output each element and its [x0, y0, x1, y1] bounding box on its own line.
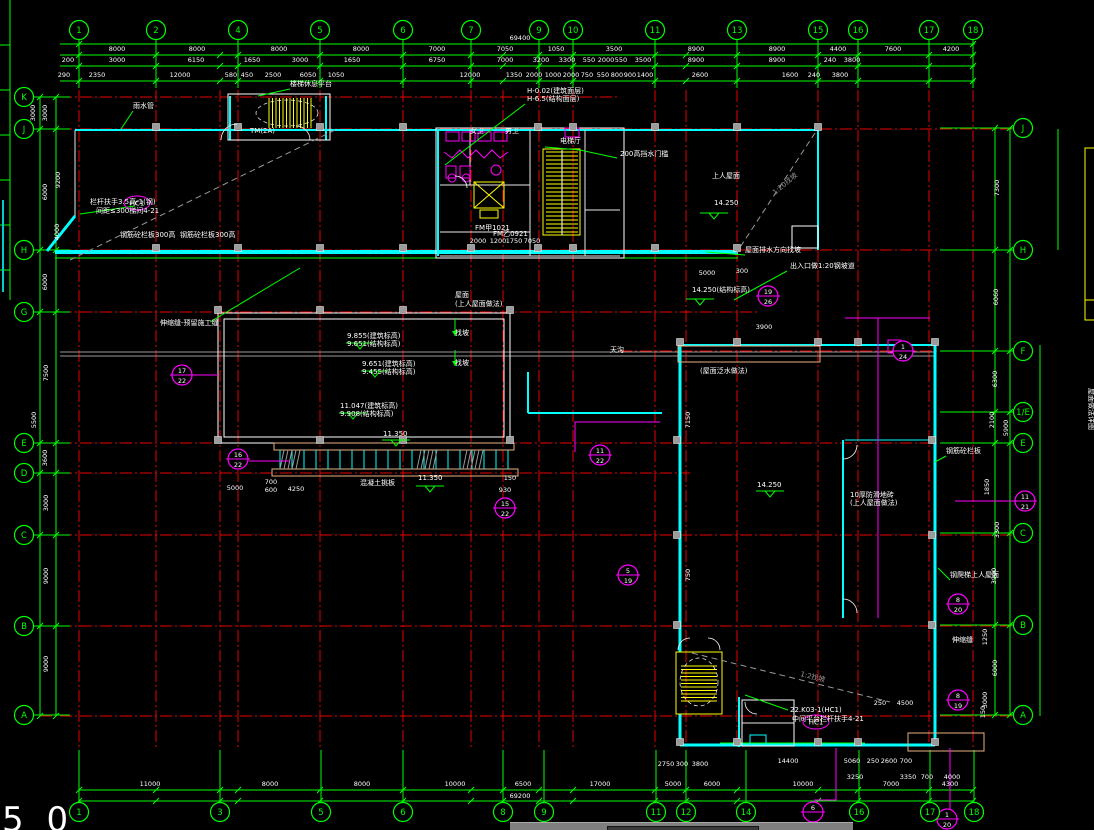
column-marker — [570, 245, 577, 252]
dimension-text: 1650 — [344, 56, 361, 64]
dimension-text: 580 — [225, 71, 237, 79]
dimension-text-vertical: 3000 — [29, 105, 37, 122]
grid-bubble-label: 2 — [153, 26, 158, 36]
dimension-text: 8900 — [688, 45, 705, 53]
column-marker — [929, 532, 936, 539]
detail-bubble-bottom-text: 22 — [501, 510, 509, 518]
annotation-text: 9.908(结构标高) — [340, 409, 394, 418]
detail-bubble-top-text: 8 — [956, 692, 960, 700]
dimension-text: 900 — [624, 71, 636, 79]
dimension-text-vertical: 6000 — [41, 184, 49, 201]
grid-bubble-label: 11 — [651, 808, 662, 818]
grid-bubble-label: 3 — [217, 808, 222, 818]
dimension-text: 2000 — [526, 71, 543, 79]
detail-bubble-bottom-text: 20 — [943, 821, 951, 829]
dimension-text: 800 — [611, 71, 623, 79]
detail-bubble-bottom-text: 20 — [954, 606, 962, 614]
dimension-text: 5000 — [665, 780, 682, 788]
dimension-text: 6000 — [704, 780, 721, 788]
dimension-text: 2000 — [598, 56, 615, 64]
dimension-text: 69200 — [510, 792, 531, 800]
dimension-text: 4500 — [897, 699, 914, 707]
dimension-text: 300 — [736, 267, 748, 275]
annotation-text: 钢筋砼栏板 — [946, 446, 981, 455]
annotation-text: 屋面 — [455, 291, 469, 299]
grid-bubble-label: 5 — [318, 808, 323, 818]
detail-bubble-top-text: 1 — [945, 811, 949, 819]
dimension-text: 240 — [824, 56, 836, 64]
dimension-text: 550 — [615, 56, 627, 64]
dimension-text: 250 — [874, 699, 886, 707]
grid-bubble-label: 17 — [924, 26, 935, 36]
annotation-text: 女卫 — [470, 126, 484, 135]
dimension-text: 3900 — [756, 323, 773, 331]
dimension-text: 7050 — [497, 45, 514, 53]
annotation-text: 男卫 — [505, 127, 519, 135]
dimension-text: 8000 — [262, 780, 279, 788]
sink-fixture — [491, 165, 501, 175]
plan-rect — [480, 210, 498, 218]
dimension-text: 450 — [241, 71, 253, 79]
annotation-text: 中间平台栏杆扶手4-21 — [792, 714, 864, 723]
dimension-text-vertical: 9200 — [54, 172, 62, 189]
detail-bubble-top-text: 1 — [901, 343, 905, 351]
annotation-text: 栏杆扶手3.5高-1(钢) — [90, 197, 156, 206]
dimension-text: 1750 — [506, 237, 523, 245]
cad-drawing-canvas[interactable]: 1722162215221122519192611218208196120124… — [0, 0, 1094, 830]
dimension-text-vertical: 1250 — [981, 629, 989, 646]
door-swing-arc — [843, 599, 857, 613]
grid-bubble-label: 8 — [500, 808, 505, 818]
dimension-text: 4000 — [944, 773, 961, 781]
dimension-text: 700 — [921, 773, 933, 781]
dimension-text: 1400 — [637, 71, 654, 79]
column-marker — [674, 622, 681, 629]
annotation-text: 9.651(结构标高) — [347, 339, 401, 348]
detail-bubble-bottom-text: 24 — [899, 353, 907, 361]
annotation-text: 11.350 — [383, 430, 408, 438]
taskbar-inner-panel[interactable] — [607, 826, 759, 830]
annotation-leader — [258, 89, 290, 96]
dimension-text: 3800 — [844, 56, 861, 64]
sheet-number-label: 5 0 — [2, 800, 74, 830]
detail-bubble-bottom-text: 19 — [954, 702, 962, 710]
dimension-text-vertical: 7500 — [42, 365, 50, 382]
dimension-text: 6750 — [429, 56, 446, 64]
column-marker — [507, 307, 514, 314]
detail-bubble-top-text: 19 — [764, 288, 772, 296]
column-marker — [932, 339, 939, 346]
grid-bubble-label: K — [21, 93, 27, 103]
hatch-line — [284, 450, 288, 469]
drawing-svg: 1722162215221122519192611218208196120124… — [0, 0, 1094, 830]
grid-bubble-label: A — [1020, 711, 1026, 721]
grid-bubble-label: A — [21, 711, 27, 721]
grid-bubble-label: 15 — [813, 26, 824, 36]
grid-bubble-label: 1 — [76, 26, 81, 36]
dimension-text: 8000 — [354, 780, 371, 788]
column-marker — [153, 245, 160, 252]
column-marker — [734, 245, 741, 252]
dimension-text-vertical: 5500 — [30, 412, 38, 429]
dimension-text: 2600 — [881, 757, 898, 765]
column-marker — [235, 124, 242, 131]
elevation-marker — [765, 491, 775, 497]
column-marker — [734, 124, 741, 131]
hatch-line — [463, 450, 467, 469]
grid-bubble-label: B — [21, 622, 27, 632]
detail-leader-line — [575, 422, 660, 452]
dimension-text-vertical: 750 — [684, 569, 692, 581]
grid-bubble-label: 16 — [853, 26, 864, 36]
hatch-line — [417, 450, 421, 469]
dimension-text-vertical: 3300 — [993, 522, 1001, 539]
hatch-line — [467, 450, 471, 469]
dimension-text: 8000 — [353, 45, 370, 53]
grid-bubble-label: G — [21, 308, 28, 318]
annotation-text: 屋面排水方向找坡 — [745, 245, 801, 254]
column-marker — [235, 245, 242, 252]
toilet-fixture — [446, 166, 456, 178]
column-marker — [400, 307, 407, 314]
dimension-text: 6050 — [300, 71, 317, 79]
column-marker — [929, 622, 936, 629]
dimension-text: 550 — [583, 56, 595, 64]
plan-rect — [792, 226, 818, 248]
annotation-text-rotated: 屋面做法详图 — [1087, 388, 1094, 430]
annotation-text: 找坡 — [455, 328, 469, 337]
column-marker — [400, 124, 407, 131]
column-marker — [855, 739, 862, 746]
dimension-text: 150 — [504, 474, 516, 482]
grid-bubble-label: 16 — [854, 808, 865, 818]
dimension-text: 7050 — [524, 237, 541, 245]
column-marker — [677, 739, 684, 746]
dimension-text: 8900 — [769, 56, 786, 64]
dimension-text: 6150 — [188, 56, 205, 64]
detail-bubble-top-text: 17 — [178, 367, 186, 375]
door-swing-arc — [843, 445, 857, 459]
annotation-text: (屋面泛水做法) — [700, 366, 748, 375]
annotation-text: 22.K03-1(HC1) — [790, 706, 842, 714]
annotation-text: 11.350 — [418, 474, 443, 482]
annotation-text: 天沟 — [610, 345, 624, 354]
dimension-text: 300 — [676, 760, 688, 768]
dimension-text: 250 — [867, 757, 879, 765]
door-swing-arc — [708, 638, 720, 650]
dimension-text: 7000 — [429, 45, 446, 53]
column-marker — [317, 307, 324, 314]
dimension-text: 10000 — [445, 780, 466, 788]
grid-bubble-label: 4 — [235, 26, 240, 36]
column-marker — [153, 124, 160, 131]
dimension-text-vertical: 5900 — [1002, 420, 1010, 437]
dimension-text: 290 — [58, 71, 70, 79]
dimension-text: 2600 — [692, 71, 709, 79]
column-marker — [535, 245, 542, 252]
grid-bubble-label: E — [21, 439, 26, 449]
grid-bubble-label: 18 — [968, 26, 979, 36]
dimension-text-vertical: 6000 — [991, 660, 999, 677]
column-marker — [815, 739, 822, 746]
wall-segment — [47, 216, 75, 251]
dimension-text-vertical: 3000 — [42, 495, 50, 512]
dimension-text: 7000 — [883, 780, 900, 788]
column-marker — [929, 437, 936, 444]
grid-bubble-label: J — [1021, 124, 1025, 134]
dimension-text: 700 — [900, 757, 912, 765]
dimension-text: 1350 — [506, 71, 523, 79]
dimension-text: 3300 — [559, 56, 576, 64]
hatch-line — [280, 450, 284, 469]
detail-bubble-bottom-text: 26 — [764, 298, 772, 306]
annotation-leader — [745, 695, 788, 710]
grid-bubble-label: 9 — [541, 808, 546, 818]
toilet-fixture — [460, 166, 470, 178]
annotation-text: 伸缩缝-预留施工缝 — [160, 318, 219, 327]
grid-bubble-label: 9 — [536, 26, 541, 36]
annotation-text: 混凝土挑板 — [360, 478, 395, 487]
dimension-text: 3500 — [635, 56, 652, 64]
hatch-line — [475, 450, 479, 469]
grid-bubble-label: 7 — [468, 26, 473, 36]
dimension-text: 600 — [265, 486, 277, 494]
annotation-text: 9.651(建筑标高) — [362, 359, 416, 368]
dimension-text: 8000 — [109, 45, 126, 53]
dimension-text: 4300 — [942, 780, 959, 788]
toilet-fixture — [446, 132, 459, 141]
detail-bubble-top-text: 8 — [956, 596, 960, 604]
dimension-text: 3250 — [847, 773, 864, 781]
detail-bubble-bottom-text: 22 — [234, 461, 242, 469]
dimension-text: 5060 — [844, 757, 861, 765]
annotation-text: 200高挡水门槛 — [620, 149, 668, 158]
dimension-text: 12000 — [460, 71, 481, 79]
column-marker — [652, 124, 659, 131]
annotation-text: 11.047(建筑标高) — [340, 401, 398, 410]
column-marker — [815, 124, 822, 131]
grid-bubble-label: J — [22, 125, 26, 135]
annotation-leader — [210, 268, 300, 322]
column-marker — [400, 245, 407, 252]
elevation-marker — [425, 486, 435, 492]
annotation-text: 电梯厅 — [560, 136, 581, 145]
dimension-text: 12000 — [170, 71, 191, 79]
annotation-text: 钢筋砼栏板300高 — [180, 230, 235, 239]
annotation-text: TM(2A) — [249, 127, 275, 135]
dimension-text-vertical: 7300 — [993, 180, 1001, 197]
column-marker — [734, 739, 741, 746]
column-marker — [932, 739, 939, 746]
dimension-text-vertical: 3000 — [41, 105, 49, 122]
grid-bubble-label: 5 — [317, 26, 322, 36]
dimension-text: 17000 — [590, 780, 611, 788]
grid-bubble-label: 1 — [76, 808, 81, 818]
dimension-text: 8900 — [688, 56, 705, 64]
column-marker — [317, 245, 324, 252]
grid-bubble-label: E — [1020, 439, 1025, 449]
dimension-text-vertical: 3600 — [41, 450, 49, 467]
grid-bubble-label: 6 — [400, 808, 405, 818]
dimension-text: 8900 — [769, 45, 786, 53]
annotation-text: 上人屋面 — [712, 171, 740, 180]
annotation-text-rotated: 1:2找坡 — [800, 669, 827, 684]
annotation-text: 10厚防滑地砖 — [850, 490, 894, 499]
column-marker — [677, 339, 684, 346]
grid-bubble-label: H — [1020, 246, 1026, 256]
annotation-leader — [121, 111, 133, 129]
dimension-text: 5000 — [699, 269, 716, 277]
grid-bubble-label: 17 — [925, 808, 936, 818]
door-swing-arc — [296, 126, 310, 140]
annotation-text: 出入口做1:20钢坡道 — [790, 261, 855, 270]
annotation-leader — [935, 456, 946, 462]
dimension-text: 10000 — [793, 780, 814, 788]
dimension-text: 3800 — [832, 71, 849, 79]
dimension-text: 700 — [265, 478, 277, 486]
dimension-text: 1200 — [490, 237, 507, 245]
grid-bubble-label: 14 — [741, 808, 752, 818]
detail-bubble-top-text: 5 — [626, 567, 630, 575]
dimension-text-vertical: 2100 — [988, 412, 996, 429]
column-marker — [815, 339, 822, 346]
grid-bubble-label: H — [21, 246, 27, 256]
column-marker — [317, 437, 324, 444]
dimension-text: 930 — [499, 486, 511, 494]
detail-bubble-bottom-text: 22 — [596, 457, 604, 465]
fixture-squiggle — [444, 150, 508, 158]
column-marker — [674, 437, 681, 444]
detail-bubble-bottom-text: 21 — [1021, 503, 1029, 511]
annotation-text: (上人屋面做法) — [455, 299, 503, 308]
dimension-text-vertical: 9000 — [42, 656, 50, 673]
annotation-text: 雨水管 — [133, 101, 154, 110]
annotation-text: 9.855(建筑标高) — [347, 331, 401, 340]
grid-bubble-label: 12 — [681, 808, 692, 818]
dimension-text: 1050 — [548, 45, 565, 53]
dimension-text: 3500 — [606, 45, 623, 53]
annotation-text: (上人屋面做法) — [850, 498, 898, 507]
hatch-line — [429, 450, 433, 469]
grid-bubble-label: 6 — [400, 26, 405, 36]
dimension-text: 69400 — [510, 34, 531, 42]
detail-bubble-top-text: 11 — [596, 447, 604, 455]
detail-bubble-bottom-text: 19 — [624, 577, 632, 585]
dimension-text: 3350 — [900, 773, 917, 781]
hatch-line — [296, 450, 300, 469]
annotation-text: 14.250 — [714, 199, 739, 207]
dimension-text: 2350 — [89, 71, 106, 79]
detail-leader-line — [815, 748, 836, 804]
annotation-text: 间距≤300梯间4-21 — [96, 206, 159, 215]
grid-bubble-label: 11 — [650, 26, 661, 36]
dimension-text: 4250 — [288, 485, 305, 493]
plan-rect — [1085, 300, 1094, 320]
column-marker — [734, 339, 741, 346]
dimension-text: 1000 — [545, 71, 562, 79]
column-marker — [674, 532, 681, 539]
dimension-text: 7000 — [497, 56, 514, 64]
grid-bubble-label: 18 — [969, 808, 980, 818]
dimension-text-vertical: 6000 — [41, 274, 49, 291]
column-marker — [652, 245, 659, 252]
dimension-text: 2000 — [563, 71, 580, 79]
dimension-text: 1650 — [244, 56, 261, 64]
dimension-text: 8000 — [271, 45, 288, 53]
grid-bubble-label: 13 — [732, 26, 743, 36]
dimension-text: 3800 — [692, 760, 709, 768]
dimension-text: 240 — [808, 71, 820, 79]
column-marker — [317, 124, 324, 131]
annotation-text: 找坡 — [455, 358, 469, 367]
hatch-line — [288, 450, 292, 469]
dimension-text-vertical: 9000 — [42, 568, 50, 585]
annotation-text: 伸缩缝 — [952, 635, 973, 644]
dimension-text: 2500 — [265, 71, 282, 79]
dimension-text-vertical: 1850 — [983, 479, 991, 496]
dimension-text: 200 — [62, 56, 74, 64]
dimension-text: 3200 — [533, 56, 550, 64]
column-marker — [215, 437, 222, 444]
grid-bubble-label: B — [1020, 621, 1026, 631]
grid-bubble-label: C — [1020, 529, 1026, 539]
detail-bubble-top-text: 6 — [811, 804, 815, 812]
dimension-text: 3000 — [292, 56, 309, 64]
elevation-marker — [709, 213, 719, 219]
dimension-text: 14400 — [778, 757, 799, 765]
annotation-text: H-6.5(结构面层) — [527, 94, 580, 103]
hatch-line — [479, 450, 483, 469]
grid-bubble-label: C — [21, 531, 27, 541]
annotation-text: 钢筋砼栏板300高 — [120, 230, 175, 239]
grid-bubble-label: 1/E — [1016, 408, 1030, 418]
dimension-text-vertical: 6300 — [991, 371, 999, 388]
dimension-text: 7600 — [885, 45, 902, 53]
dimension-text: 5000 — [227, 484, 244, 492]
grid-bubble-label: D — [21, 469, 28, 479]
dimension-text: 4400 — [830, 45, 847, 53]
column-marker — [535, 124, 542, 131]
dimension-text: 3000 — [109, 56, 126, 64]
annotation-text: H-0.02(建筑面层) — [527, 86, 584, 95]
column-marker — [468, 245, 475, 252]
annotation-text: 钢爬梯上人屋面 — [950, 570, 999, 579]
annotation-text-rotated: 1:20找坡 — [771, 171, 800, 197]
annotation-text: 14.250(结构标高) — [692, 285, 750, 294]
elevation-marker — [695, 299, 705, 305]
dimension-text: 8000 — [189, 45, 206, 53]
column-marker — [215, 307, 222, 314]
grid-bubble-label: F — [1021, 347, 1026, 357]
dimension-text-vertical: 4000 — [53, 224, 61, 241]
detail-bubble-top-text: 15 — [501, 500, 509, 508]
dimension-text: 1600 — [782, 71, 799, 79]
dimension-text: 2750 — [658, 760, 675, 768]
hatch-line — [292, 450, 296, 469]
column-marker — [507, 437, 514, 444]
dimension-text-vertical: 6060 — [992, 289, 1000, 306]
annotation-text: 楼梯休息平台 — [290, 79, 332, 88]
detail-bubble-top-text: 11 — [1021, 493, 1029, 501]
annotation-text: 14.250 — [757, 481, 782, 489]
dimension-text: 1050 — [328, 71, 345, 79]
detail-bubble-top-text: 16 — [234, 451, 242, 459]
detail-bubble-bottom-text: 22 — [178, 377, 186, 385]
dimension-text-vertical: 150 — [979, 706, 987, 718]
door-swing-arc — [745, 702, 757, 714]
annotation-leader — [938, 568, 950, 580]
dimension-text: 750 — [581, 71, 593, 79]
